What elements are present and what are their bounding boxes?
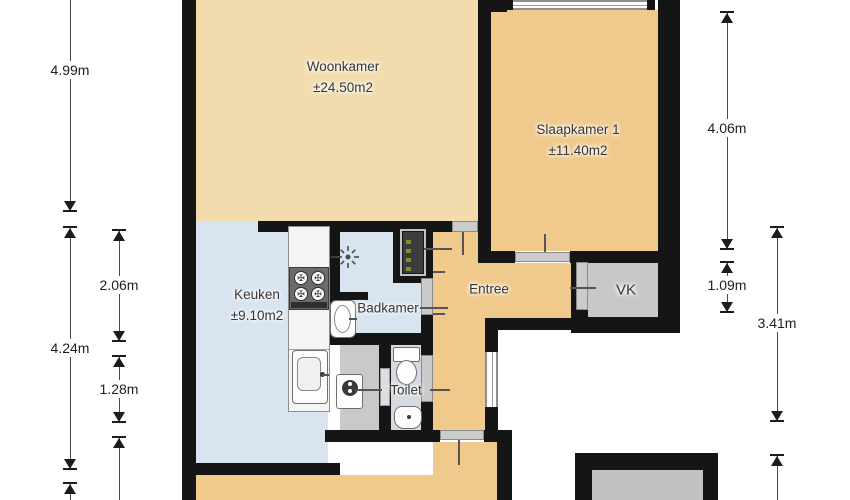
- window-slaapkamer-top: [505, 0, 655, 10]
- dim-label-4-06: 4.06m: [704, 119, 751, 137]
- dim-arrow-down: [721, 239, 733, 249]
- dim-arrow-up: [64, 484, 76, 494]
- toilet-leader-right: [430, 389, 450, 391]
- window-cap-left: [505, 0, 513, 10]
- vk-name: VK: [616, 280, 636, 301]
- dim-arrow-up: [721, 13, 733, 23]
- dim-label-4-99: 4.99m: [47, 61, 94, 79]
- door-entree-toilet: [421, 355, 433, 402]
- dim-arrow-up: [113, 438, 125, 448]
- door-swing-vk: [570, 287, 596, 289]
- slaapkamer1-name: Slaapkamer 1: [536, 119, 619, 140]
- label-entree: Entree: [469, 279, 509, 300]
- boiler-icon: [402, 231, 424, 274]
- boiler-leader-line: [424, 248, 452, 250]
- wall-slaapkamer-bottom-a: [485, 251, 515, 263]
- wall-outer-left: [182, 0, 196, 500]
- door-swing-bottom-room: [458, 440, 460, 465]
- dim-arrow-up: [771, 228, 783, 238]
- floor-bottom-room: [196, 475, 497, 500]
- wall-arm-right-upper: [485, 318, 498, 352]
- dim-arrow-down: [721, 302, 733, 312]
- wall-bottom-room-top-a: [325, 430, 440, 442]
- floor-shed: [592, 470, 703, 500]
- wall-arm-right-lower: [485, 407, 498, 430]
- dim-label-2-06: 2.06m: [96, 276, 143, 294]
- window-cap-right: [647, 0, 655, 10]
- slaapkamer1-area: ±11.40m2: [536, 140, 619, 161]
- door-entree-vk: [576, 262, 588, 310]
- dim-label-1-28: 1.28m: [96, 380, 143, 398]
- label-toilet: Toilet: [390, 380, 422, 401]
- dim-arrow-down: [771, 411, 783, 421]
- wall-bottom-room-right: [497, 430, 512, 500]
- kitchen-sink-icon: [292, 350, 328, 404]
- door-swing-slaapkamer: [544, 234, 546, 252]
- dim-label-1-09: 1.09m: [704, 276, 751, 294]
- toilet-hand-basin-icon: [394, 406, 422, 429]
- wall-toilet-entree-top: [421, 345, 433, 355]
- bathroom-basin-icon: [330, 300, 356, 338]
- keuken-area: ±9.10m2: [231, 305, 283, 326]
- dim-arrow-up: [721, 263, 733, 273]
- door-tick-badkamer-bottom: [433, 313, 445, 315]
- label-slaapkamer1: Slaapkamer 1 ±11.40m2: [536, 119, 619, 161]
- toilet-leader-left: [356, 389, 382, 391]
- dim-left-outer-top-line: [70, 0, 71, 211]
- floorplan-canvas: Woonkamer ±24.50m2 Slaapkamer 1 ±11.40m2…: [0, 0, 850, 500]
- floor-bottom-room-upper: [433, 442, 497, 475]
- wall-woonkamer-slaapkamer: [478, 0, 491, 263]
- floor-woonkamer: [196, 0, 478, 221]
- stove-icon: [289, 267, 329, 310]
- badkamer-leader-line: [420, 307, 448, 309]
- dim-arrow-down: [64, 459, 76, 469]
- dim-arrow-up: [64, 228, 76, 238]
- label-vk: VK: [616, 280, 636, 301]
- dim-arrow-down: [113, 331, 125, 341]
- dim-label-3-41: 3.41m: [754, 314, 801, 332]
- dim-arrow-down: [64, 201, 76, 211]
- door-tick-badkamer-top: [433, 271, 445, 273]
- shower-icon: [331, 242, 363, 272]
- entree-name: Entree: [469, 279, 509, 300]
- dim-arrow-down: [113, 412, 125, 422]
- woonkamer-area: ±24.50m2: [307, 77, 380, 98]
- door-entree-badkamer: [421, 278, 433, 315]
- door-toilet-closet: [380, 368, 390, 406]
- door-entree-bottom-room: [440, 430, 484, 440]
- keuken-name: Keuken: [231, 284, 283, 305]
- badkamer-name: Badkamer: [357, 298, 419, 319]
- door-swing-woonkamer: [462, 232, 464, 255]
- washer-icon: [336, 374, 363, 409]
- label-keuken: Keuken ±9.10m2: [231, 284, 283, 326]
- dim-arrow-up: [113, 231, 125, 241]
- label-woonkamer: Woonkamer ±24.50m2: [307, 56, 380, 98]
- door-slaapkamer-entree: [515, 252, 570, 262]
- woonkamer-name: Woonkamer: [307, 56, 380, 77]
- dim-label-4-24: 4.24m: [47, 339, 94, 357]
- wall-outer-right: [658, 0, 680, 333]
- toilet-name: Toilet: [390, 380, 422, 401]
- wall-vk-bottom: [571, 317, 680, 333]
- dim-arrow-up: [113, 357, 125, 367]
- wall-keuken-bottom: [182, 463, 340, 475]
- door-woonkamer-entree: [452, 221, 478, 232]
- window-entree-arm: [485, 352, 498, 407]
- dim-arrow-up: [771, 456, 783, 466]
- wall-toilet-entree-bottom: [421, 402, 433, 430]
- wall-bottom-room-top-b: [484, 430, 497, 442]
- label-badkamer: Badkamer: [357, 298, 419, 319]
